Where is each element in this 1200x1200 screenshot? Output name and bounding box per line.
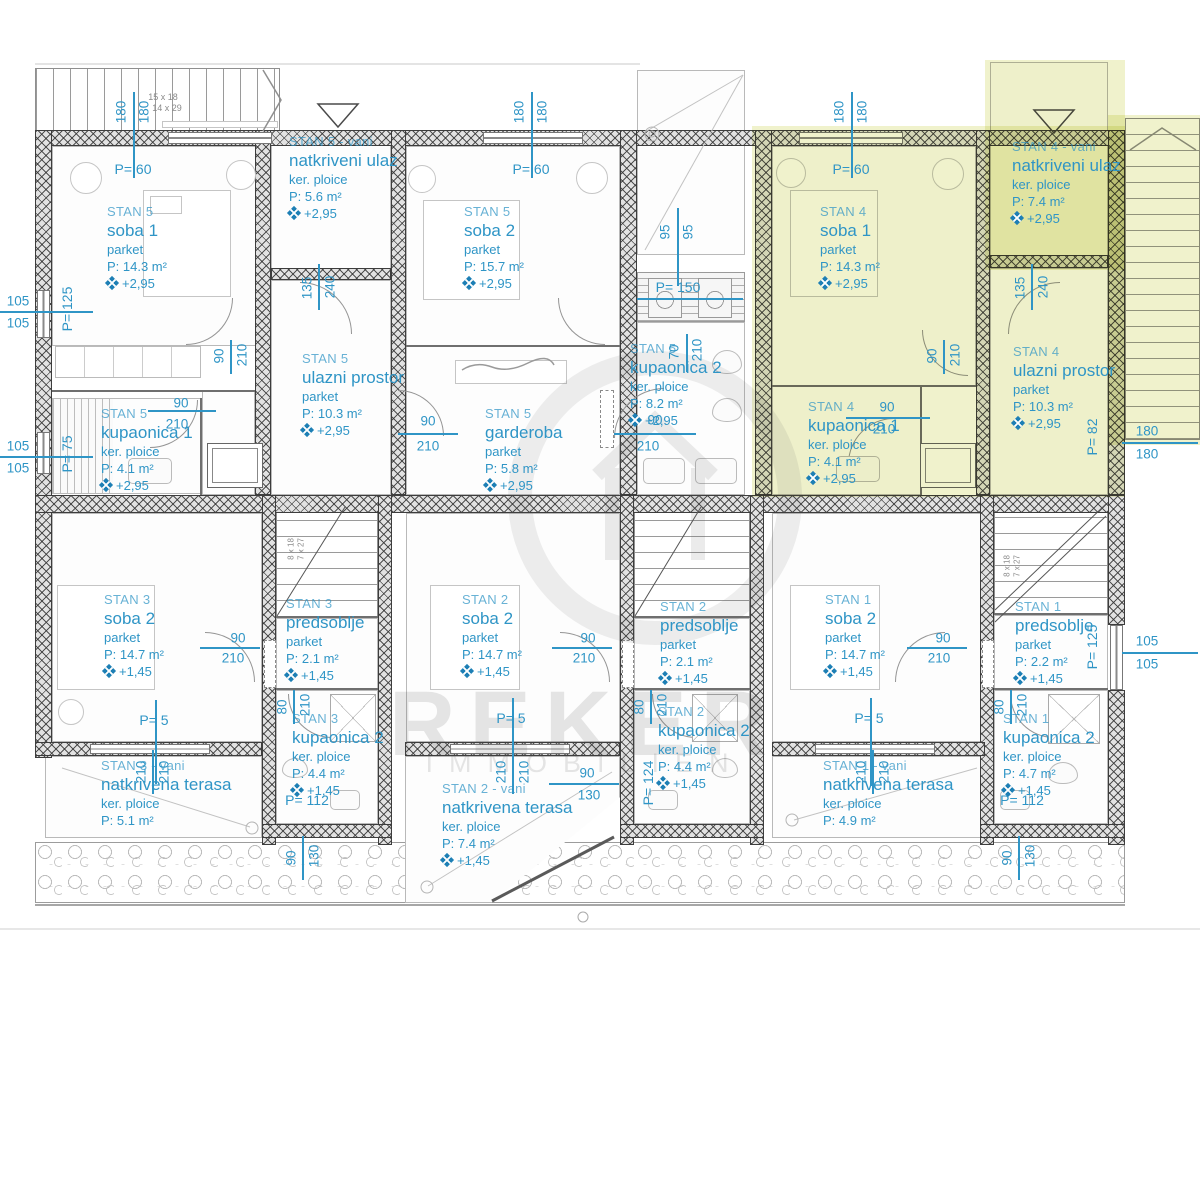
shaft-stan5 [207, 443, 263, 488]
level-marker-icon [462, 276, 476, 290]
dim-line [1122, 652, 1198, 654]
dim-210: 210 [166, 417, 189, 432]
dim-105: 105 [1136, 657, 1159, 672]
dim-135: 135 [300, 277, 315, 300]
dim-210: 210 [235, 344, 250, 367]
dim-90: 90 [647, 413, 662, 428]
wall-col2-right [750, 495, 764, 845]
terrace-door-stan1 [815, 744, 935, 754]
label-stan4-soba1: STAN 4 soba 1 parket P: 14.3 m² +2,95 [820, 203, 880, 292]
dim-line [1122, 442, 1198, 444]
window-stan5-soba1 [168, 132, 272, 144]
dim-line [650, 690, 652, 724]
dim-line [200, 647, 260, 649]
plabel-p5: P= 5 [854, 710, 883, 726]
table-stan5-soba1-l [70, 162, 102, 194]
sink-stan5-kupa2-b [695, 458, 737, 484]
dim-240: 240 [1036, 276, 1051, 299]
label-stan1-kupaonica2: STAN 1 kupaonica 2 ker. ploice P: 4.7 m²… [1003, 710, 1095, 799]
terrace-door-stan3 [90, 744, 210, 754]
dim-210: 210 [157, 761, 172, 784]
dim-line [302, 836, 304, 880]
level-marker-icon [99, 478, 113, 492]
label-stan4-natkriveni-ulaz: STAN 4 - vani natkriveni ulaz ker. ploic… [1012, 138, 1121, 227]
plabel-p124: P= 124 [640, 761, 656, 806]
dim-line [677, 208, 679, 286]
dim-90: 90 [579, 766, 594, 781]
dim-105: 105 [7, 316, 30, 331]
label-stan5-ulazni-prostor: STAN 5 ulazni prostor parket P: 10.3 m² … [302, 350, 404, 439]
dim-180: 180 [832, 101, 847, 124]
wall-right-mid [1108, 495, 1125, 625]
dim-90: 90 [230, 631, 245, 646]
level-marker-icon [628, 413, 642, 427]
dim-210: 210 [417, 439, 440, 454]
wall-kupa2-bottom [620, 824, 764, 838]
dim-180: 180 [512, 101, 527, 124]
dim-210: 210 [690, 339, 705, 362]
level-marker-icon [105, 276, 119, 290]
dim-line [907, 647, 967, 649]
window-stan5-soba2 [483, 132, 583, 144]
dim-210: 210 [637, 439, 660, 454]
dim-210: 210 [573, 651, 596, 666]
plabel-p150: P= 150 [656, 279, 701, 295]
dim-line [0, 456, 93, 458]
dim-180: 180 [114, 101, 129, 124]
stair-note-stan1-1: 8 x 18 [1003, 555, 1012, 577]
window-sill-stan5 [162, 121, 278, 128]
dim-210: 210 [494, 761, 509, 784]
table-garderoba [455, 360, 567, 384]
dim-90: 90 [925, 348, 940, 363]
wall-v1 [255, 130, 271, 495]
level-marker-icon [483, 478, 497, 492]
level-marker-icon [440, 853, 454, 867]
table-stan3-soba2 [58, 699, 84, 725]
highlight-stan4-stairs [1108, 115, 1200, 445]
label-stan5-garderoba: STAN 5 garderoba parket P: 5.8 m² +2,95 [485, 405, 563, 494]
dim-line [230, 340, 232, 374]
level-marker-icon [658, 671, 672, 685]
pocket-door-stan2 [622, 640, 634, 688]
dim-line [552, 647, 612, 649]
floor-plan-canvas: REKER IMMOBILIEN STAN 5 soba 1 parket P:… [0, 0, 1200, 1200]
level-marker-icon [1013, 671, 1027, 685]
partition-stan5-kupa [52, 390, 255, 392]
pocket-door-stan1 [982, 640, 994, 688]
dim-line [943, 340, 945, 374]
plabel-p5: P= 5 [139, 712, 168, 728]
dim-90: 90 [420, 414, 435, 429]
dim-70: 70 [667, 344, 682, 359]
level-marker-icon [300, 423, 314, 437]
pocket-door-stan5-kupa2 [600, 390, 614, 448]
dim-210: 210 [655, 694, 670, 717]
plabel-p60: P= 60 [115, 161, 152, 177]
dim-80: 80 [992, 699, 1007, 714]
terrace-door-stan2 [450, 744, 570, 754]
dim-130: 130 [1023, 845, 1038, 868]
label-stan2-kupaonica2: STAN 2 kupaonica 2 ker. ploice P: 4.4 m²… [658, 703, 750, 792]
dim-180: 180 [855, 101, 870, 124]
label-stan1-predsoblje: STAN 1 predsoblje parket P: 2.2 m² +1,45 [1015, 598, 1093, 687]
dim-210: 210 [134, 761, 149, 784]
dim-180: 180 [137, 101, 152, 124]
stair-note-stan1-2: 7 x 27 [1013, 555, 1022, 577]
plabel-p82: P= 82 [1084, 419, 1100, 456]
dim-210: 210 [298, 694, 313, 717]
level-marker-icon [460, 664, 474, 678]
plabel-p75: P= 75 [59, 436, 75, 473]
dim-90: 90 [1000, 850, 1015, 865]
stair-note-stan3-1: 8 x 18 [287, 538, 296, 560]
label-stan5-soba2: STAN 5 soba 2 parket P: 15.7 m² +2,95 [464, 203, 524, 292]
dim-105: 105 [7, 439, 30, 454]
window-left-upper [37, 290, 50, 338]
dim-210: 210 [928, 651, 951, 666]
dim-210: 210 [517, 761, 532, 784]
level-marker-icon [1011, 416, 1025, 430]
dim-210: 210 [873, 422, 896, 437]
dim-80: 80 [275, 699, 290, 714]
level-marker-icon [102, 664, 116, 678]
table-stan5-soba2-r [576, 162, 608, 194]
dim-210: 210 [877, 761, 892, 784]
wall-right-bottom [1108, 690, 1125, 845]
label-stan2-predsoblje: STAN 2 predsoblje parket P: 2.1 m² +1,45 [660, 598, 738, 687]
dim-line [637, 298, 743, 300]
dim-210: 210 [854, 761, 869, 784]
dim-line [318, 264, 320, 310]
dim-95: 95 [681, 224, 696, 239]
dim-line [1018, 836, 1020, 880]
partition-s3-b [276, 688, 378, 690]
wall-kupa3-bottom [262, 824, 392, 838]
sink-stan5-kupa2-a [643, 458, 685, 484]
table-stan5-soba2-l [408, 165, 436, 193]
dim-line [0, 311, 93, 313]
dim-90: 90 [173, 396, 188, 411]
dim-210: 210 [1015, 694, 1030, 717]
dim-80: 80 [632, 699, 647, 714]
dim-135: 135 [1013, 277, 1028, 300]
plabel-p5: P= 5 [496, 710, 525, 726]
level-marker-icon [1010, 211, 1024, 225]
dim-line [1031, 264, 1033, 310]
level-marker-icon [656, 776, 670, 790]
level-marker-icon [818, 276, 832, 290]
wall-v3 [620, 130, 637, 495]
level-marker-icon [287, 206, 301, 220]
partition-stan5-kupa-r [200, 398, 202, 495]
label-stan1-soba2: STAN 1 soba 2 parket P: 14.7 m² +1,45 [825, 591, 885, 680]
label-stan3-soba2: STAN 3 soba 2 parket P: 14.7 m² +1,45 [104, 591, 164, 680]
dim-240: 240 [323, 276, 338, 299]
stair-note-1: 15 x 18 [148, 92, 178, 102]
dim-90: 90 [879, 400, 894, 415]
dim-90: 90 [284, 850, 299, 865]
dim-line [614, 433, 696, 435]
wardrobe-stan5 [55, 346, 201, 378]
site-marker-icon [578, 912, 588, 922]
window-left-lower [37, 432, 50, 474]
level-marker-icon [806, 471, 820, 485]
stair-note-stan3-2: 7 x 27 [297, 538, 306, 560]
label-stan5-soba1: STAN 5 soba 1 parket P: 14.3 m² +2,95 [107, 203, 167, 292]
plabel-p60: P= 60 [833, 161, 870, 177]
dim-130: 130 [307, 845, 322, 868]
label-stan2-terasa: STAN 2 - vani natkrivena terasa ker. plo… [442, 780, 572, 869]
dim-105: 105 [7, 294, 30, 309]
dim-90: 90 [580, 631, 595, 646]
partition-garderoba [406, 345, 620, 347]
gravel-strip [35, 842, 1125, 903]
plabel-p112: P= 112 [1000, 792, 1044, 808]
plabel-p125: P= 125 [59, 287, 75, 332]
stair-note-2: 14 x 29 [152, 103, 182, 113]
dim-180: 180 [1136, 424, 1159, 439]
window-right-predsoblje [1110, 625, 1123, 690]
dim-180: 180 [1136, 447, 1159, 462]
pocket-door-stan3 [264, 640, 276, 688]
dim-line [398, 433, 458, 435]
entrance-triangle-stan5-icon [318, 104, 358, 127]
dim-130: 130 [578, 788, 601, 803]
plabel-p112: P= 112 [285, 792, 329, 808]
level-marker-icon [284, 668, 298, 682]
dim-95: 95 [658, 224, 673, 239]
dim-105: 105 [1136, 634, 1159, 649]
dim-90: 90 [935, 631, 950, 646]
table-stan5-soba1-r [226, 160, 256, 190]
plabel-p125: P= 125 [1084, 625, 1100, 670]
label-stan3-kupaonica2: STAN 3 kupaonica 2 ker. ploice P: 4.4 m²… [292, 710, 384, 799]
dim-210: 210 [222, 651, 245, 666]
wall-mid [35, 495, 1125, 513]
dim-105: 105 [7, 461, 30, 476]
wall-kupa1-bottom [980, 824, 1125, 838]
label-stan2-soba2: STAN 2 soba 2 parket P: 14.7 m² +1,45 [462, 591, 522, 680]
level-marker-icon [823, 664, 837, 678]
dim-180: 180 [535, 101, 550, 124]
label-stan5-natkriveni-ulaz: STAN 5 - vani natkriveni ulaz ker. ploic… [289, 133, 398, 222]
label-stan3-predsoblje: STAN 3 predsoblje parket P: 2.1 m² +1,45 [286, 595, 364, 684]
dim-90: 90 [212, 348, 227, 363]
plabel-p60: P= 60 [513, 161, 550, 177]
dim-210: 210 [948, 344, 963, 367]
